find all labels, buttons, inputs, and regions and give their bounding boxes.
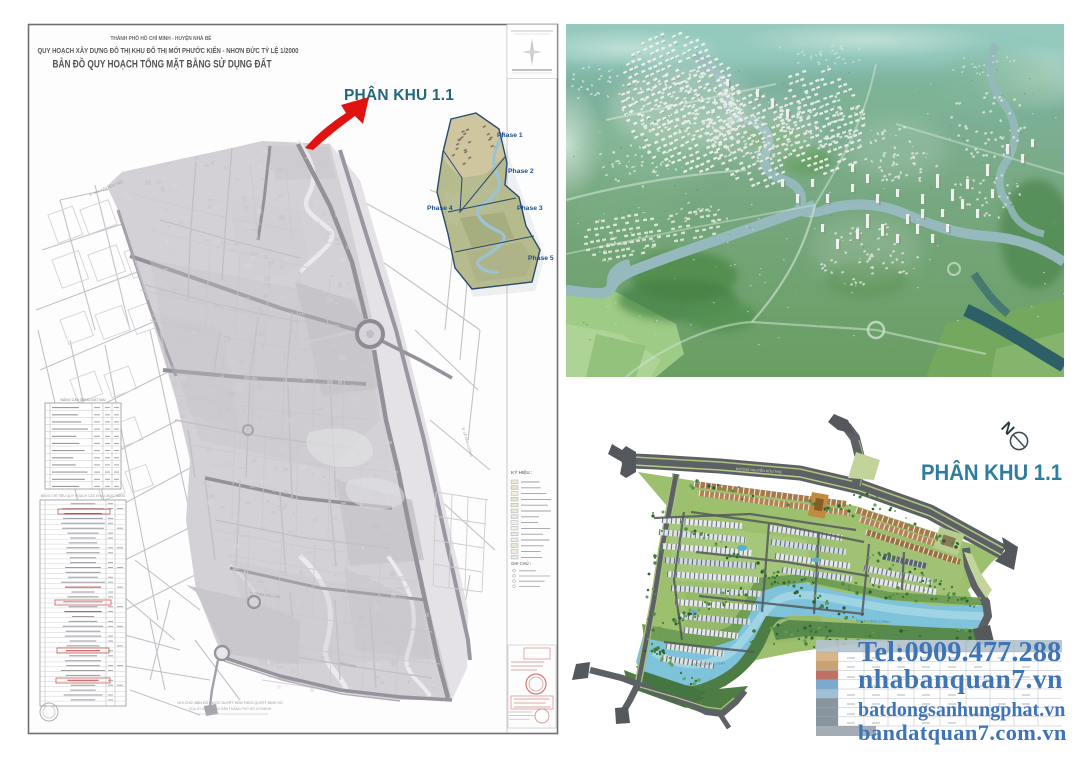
svg-text:GHI CHÚ: BẢN ĐỒ ĐƯỢC DUYỆT KÈM: GHI CHÚ: BẢN ĐỒ ĐƯỢC DUYỆT KÈM THEO QUYẾ…: [177, 700, 283, 705]
svg-text:Phase 2: Phase 2: [508, 168, 534, 175]
svg-text:Phase 1: Phase 1: [497, 132, 523, 139]
svg-text:PHÂN KHU 1.1: PHÂN KHU 1.1: [921, 460, 1062, 485]
svg-text:Phase 4: Phase 4: [427, 205, 453, 212]
svg-text:QUY HOẠCH XÂY DỰNG ĐÔ THỊ KHU: QUY HOẠCH XÂY DỰNG ĐÔ THỊ KHU ĐÔ THỊ MỚI…: [38, 46, 299, 55]
svg-text:CỦA ỦY BAN NHÂN DÂN THÀNH PHỐ: CỦA ỦY BAN NHÂN DÂN THÀNH PHỐ HỒ CHÍ MIN…: [189, 706, 272, 711]
svg-text:GHI CHÚ :: GHI CHÚ :: [511, 561, 531, 566]
svg-text:BẢNG CHỈ TIÊU QUY HOẠCH CÁC KH: BẢNG CHỈ TIÊU QUY HOẠCH CÁC KHU CHỨC NĂN…: [41, 493, 126, 498]
svg-text:KÝ HIỆU :: KÝ HIỆU :: [511, 468, 533, 475]
svg-text:Phase 3: Phase 3: [517, 205, 543, 212]
svg-text:THÀNH PHỐ HỒ CHÍ MINH - HUYỆN: THÀNH PHỐ HỒ CHÍ MINH - HUYỆN NHÀ BÈ: [111, 34, 212, 42]
svg-text:Phase 5: Phase 5: [528, 255, 554, 262]
svg-text:BẢNG CÂN BẰNG ĐẤT ĐAI: BẢNG CÂN BẰNG ĐẤT ĐAI: [60, 397, 105, 402]
svg-text:BẢN ĐỒ QUY HOẠCH TỔNG MẶT BẰNG: BẢN ĐỒ QUY HOẠCH TỔNG MẶT BẰNG SỬ DỤNG Đ…: [53, 58, 272, 71]
